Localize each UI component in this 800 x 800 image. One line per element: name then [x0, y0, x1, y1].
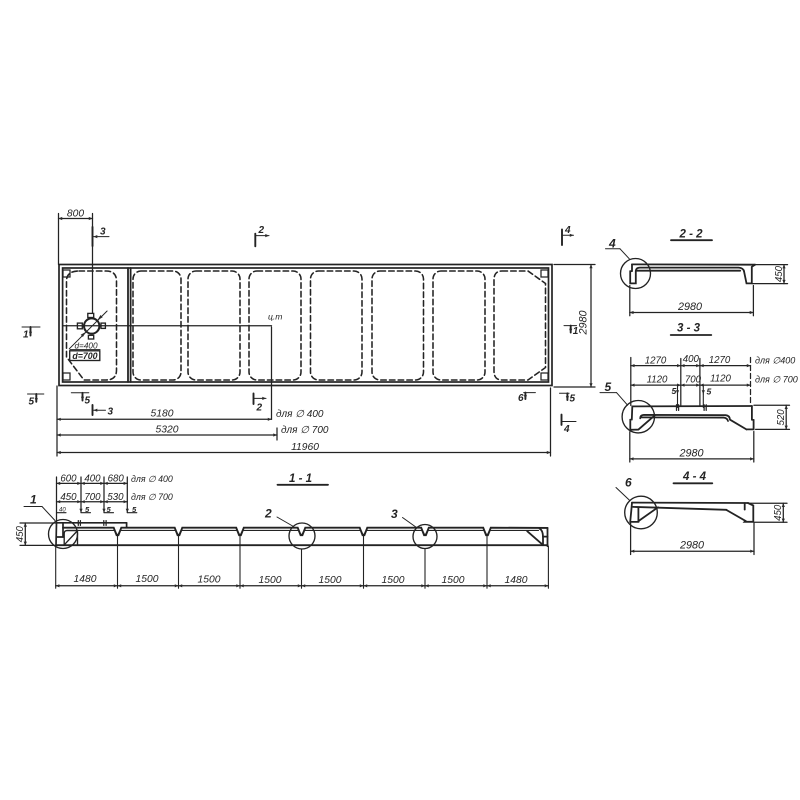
svg-text:для ∅ 400: для ∅ 400 — [131, 474, 173, 484]
svg-text:1480: 1480 — [74, 574, 97, 585]
svg-text:680: 680 — [108, 474, 125, 485]
svg-text:2: 2 — [256, 403, 263, 414]
svg-text:400: 400 — [84, 474, 101, 485]
svg-text:6: 6 — [518, 393, 524, 404]
svg-text:для ∅400: для ∅400 — [755, 355, 795, 365]
svg-text:4 - 4: 4 - 4 — [682, 471, 707, 483]
svg-text:5: 5 — [672, 386, 677, 396]
svg-text:3: 3 — [100, 226, 106, 237]
svg-text:для ∅ 700: для ∅ 700 — [281, 425, 329, 436]
svg-text:600: 600 — [60, 474, 77, 485]
svg-text:3: 3 — [108, 407, 114, 418]
svg-text:1500: 1500 — [136, 574, 159, 585]
svg-text:для ∅ 700: для ∅ 700 — [131, 492, 173, 502]
svg-text:4: 4 — [608, 237, 616, 251]
svg-text:5: 5 — [29, 397, 35, 408]
svg-text:1500: 1500 — [442, 575, 465, 586]
svg-text:3: 3 — [391, 507, 398, 521]
svg-text:2 - 2: 2 - 2 — [678, 229, 703, 241]
svg-text:1: 1 — [30, 493, 37, 507]
svg-text:2980: 2980 — [677, 301, 702, 313]
svg-text:3 - 3: 3 - 3 — [677, 323, 701, 335]
svg-text:700: 700 — [685, 374, 702, 385]
svg-text:800: 800 — [67, 208, 84, 219]
svg-text:1480: 1480 — [505, 575, 528, 586]
svg-text:5: 5 — [605, 380, 612, 394]
svg-text:5320: 5320 — [156, 424, 179, 435]
svg-text:1120: 1120 — [647, 374, 668, 385]
svg-text:ц.т: ц.т — [268, 312, 282, 322]
svg-text:1: 1 — [23, 330, 29, 341]
svg-text:4: 4 — [564, 225, 571, 236]
svg-text:5: 5 — [707, 386, 712, 396]
svg-text:450: 450 — [15, 526, 26, 543]
svg-text:2: 2 — [264, 507, 272, 521]
svg-text:450: 450 — [773, 504, 784, 521]
svg-text:2980: 2980 — [578, 310, 590, 335]
svg-text:для ∅ 400: для ∅ 400 — [276, 409, 324, 420]
svg-text:d=400: d=400 — [75, 341, 98, 350]
svg-text:5180: 5180 — [151, 409, 174, 420]
svg-text:450: 450 — [60, 492, 77, 503]
svg-text:1500: 1500 — [259, 575, 282, 586]
svg-text:450: 450 — [774, 265, 785, 282]
svg-text:1500: 1500 — [382, 575, 405, 586]
svg-text:5: 5 — [570, 394, 576, 405]
svg-text:5: 5 — [85, 396, 91, 407]
svg-text:40: 40 — [59, 508, 66, 514]
svg-text:1120: 1120 — [710, 373, 731, 384]
svg-text:1270: 1270 — [709, 355, 731, 366]
svg-text:1270: 1270 — [645, 355, 667, 366]
svg-text:6: 6 — [625, 476, 632, 490]
svg-text:400: 400 — [683, 354, 700, 365]
svg-text:2980: 2980 — [679, 540, 704, 552]
svg-text:1500: 1500 — [198, 574, 221, 585]
svg-text:1500: 1500 — [319, 575, 342, 586]
svg-text:d=700: d=700 — [72, 351, 97, 361]
svg-text:520: 520 — [776, 409, 787, 426]
svg-text:11960: 11960 — [291, 442, 319, 453]
svg-text:2980: 2980 — [678, 447, 703, 459]
svg-text:для ∅ 700: для ∅ 700 — [755, 374, 798, 384]
svg-text:1 - 1: 1 - 1 — [289, 473, 312, 485]
svg-text:700: 700 — [84, 492, 101, 503]
svg-text:530: 530 — [107, 492, 124, 503]
svg-text:2: 2 — [258, 225, 265, 236]
svg-text:4: 4 — [563, 424, 570, 435]
